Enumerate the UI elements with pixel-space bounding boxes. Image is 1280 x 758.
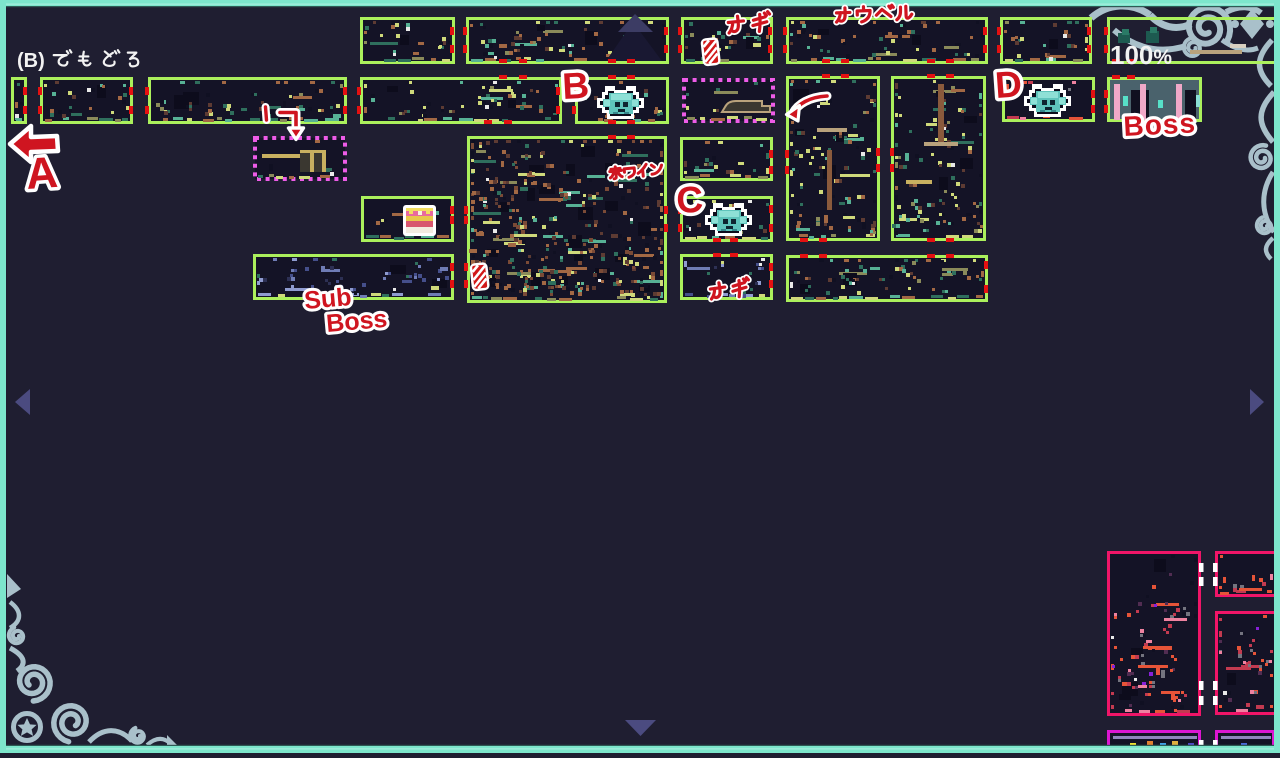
svg-text:Boss: Boss (325, 305, 388, 338)
svg-text:B: B (561, 65, 590, 107)
svg-text:C: C (675, 179, 704, 221)
svg-text:D: D (994, 63, 1024, 106)
svg-text:(B): (B) (17, 50, 45, 72)
svg-text:Boss: Boss (1123, 107, 1197, 142)
svg-text:A: A (24, 148, 59, 199)
